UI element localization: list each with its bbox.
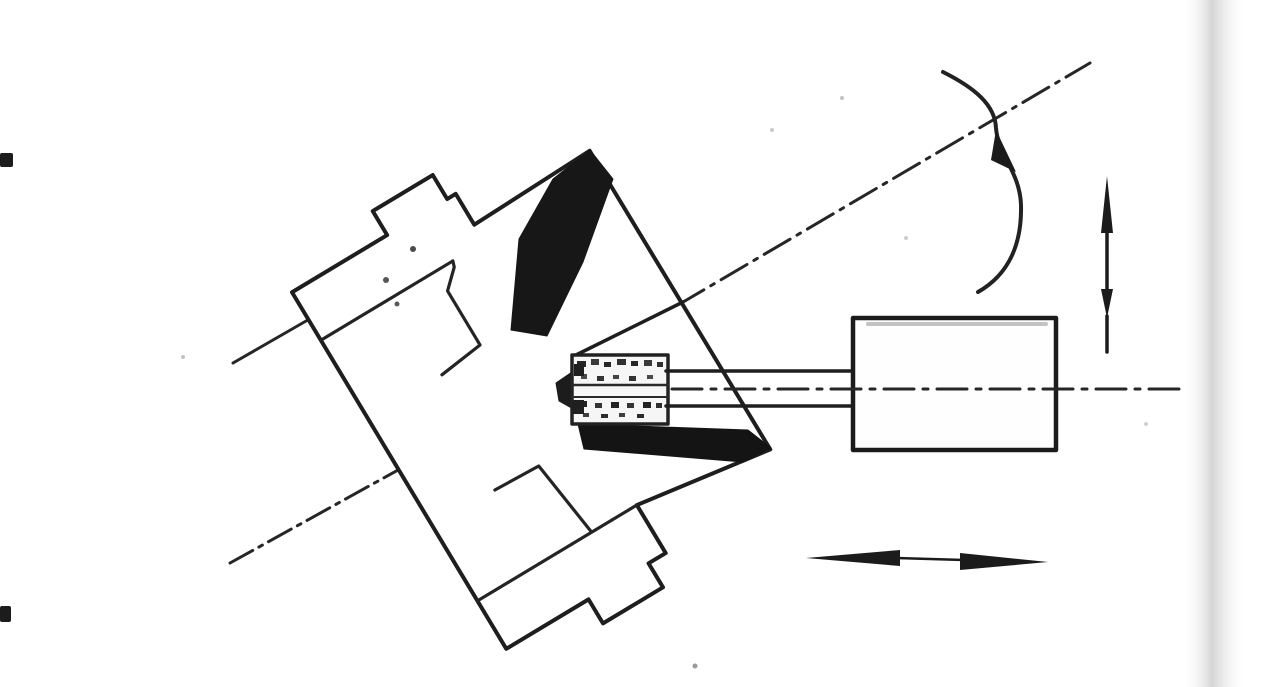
margin-dash-top <box>0 153 13 167</box>
wheel-grain <box>591 359 599 365</box>
wheel-grain <box>643 402 651 408</box>
wheel-grain <box>644 360 652 366</box>
chuck-surface-dot <box>383 277 389 283</box>
wheel-grain <box>647 375 653 379</box>
paper-speckle <box>840 96 844 100</box>
wheel-grain <box>572 400 584 414</box>
figure-canvas <box>0 0 1280 687</box>
wheel-grain <box>629 376 636 381</box>
wheel-grain <box>657 362 663 367</box>
spindle-motor-housing <box>853 318 1056 450</box>
wheel-grain <box>574 364 584 376</box>
chuck-surface-dot <box>410 246 416 252</box>
wheel-grain <box>604 362 611 367</box>
page-edge-shadow <box>1183 0 1247 687</box>
paper-speckle <box>1144 422 1148 426</box>
wheel-grain <box>637 414 644 418</box>
wheel-grain <box>595 403 602 408</box>
chuck-surface-dot <box>395 302 400 307</box>
paper-speckle <box>693 664 698 669</box>
figure-root <box>0 0 1280 687</box>
wheel-grain <box>619 413 625 417</box>
wheel-grain <box>597 376 604 381</box>
wheel-grain <box>611 402 619 408</box>
margin-dash-bottom <box>0 606 11 622</box>
scanned-figure-page <box>0 0 1280 687</box>
paper-speckle <box>770 128 774 132</box>
wheel-grain <box>601 414 608 418</box>
wheel-grain <box>627 403 634 408</box>
wheel-grain <box>617 359 626 365</box>
wheel-grain <box>656 403 662 408</box>
paper-speckle <box>181 355 185 359</box>
paper-speckle <box>904 236 908 240</box>
wheel-grain <box>631 361 638 366</box>
wheel-grain <box>613 375 619 379</box>
